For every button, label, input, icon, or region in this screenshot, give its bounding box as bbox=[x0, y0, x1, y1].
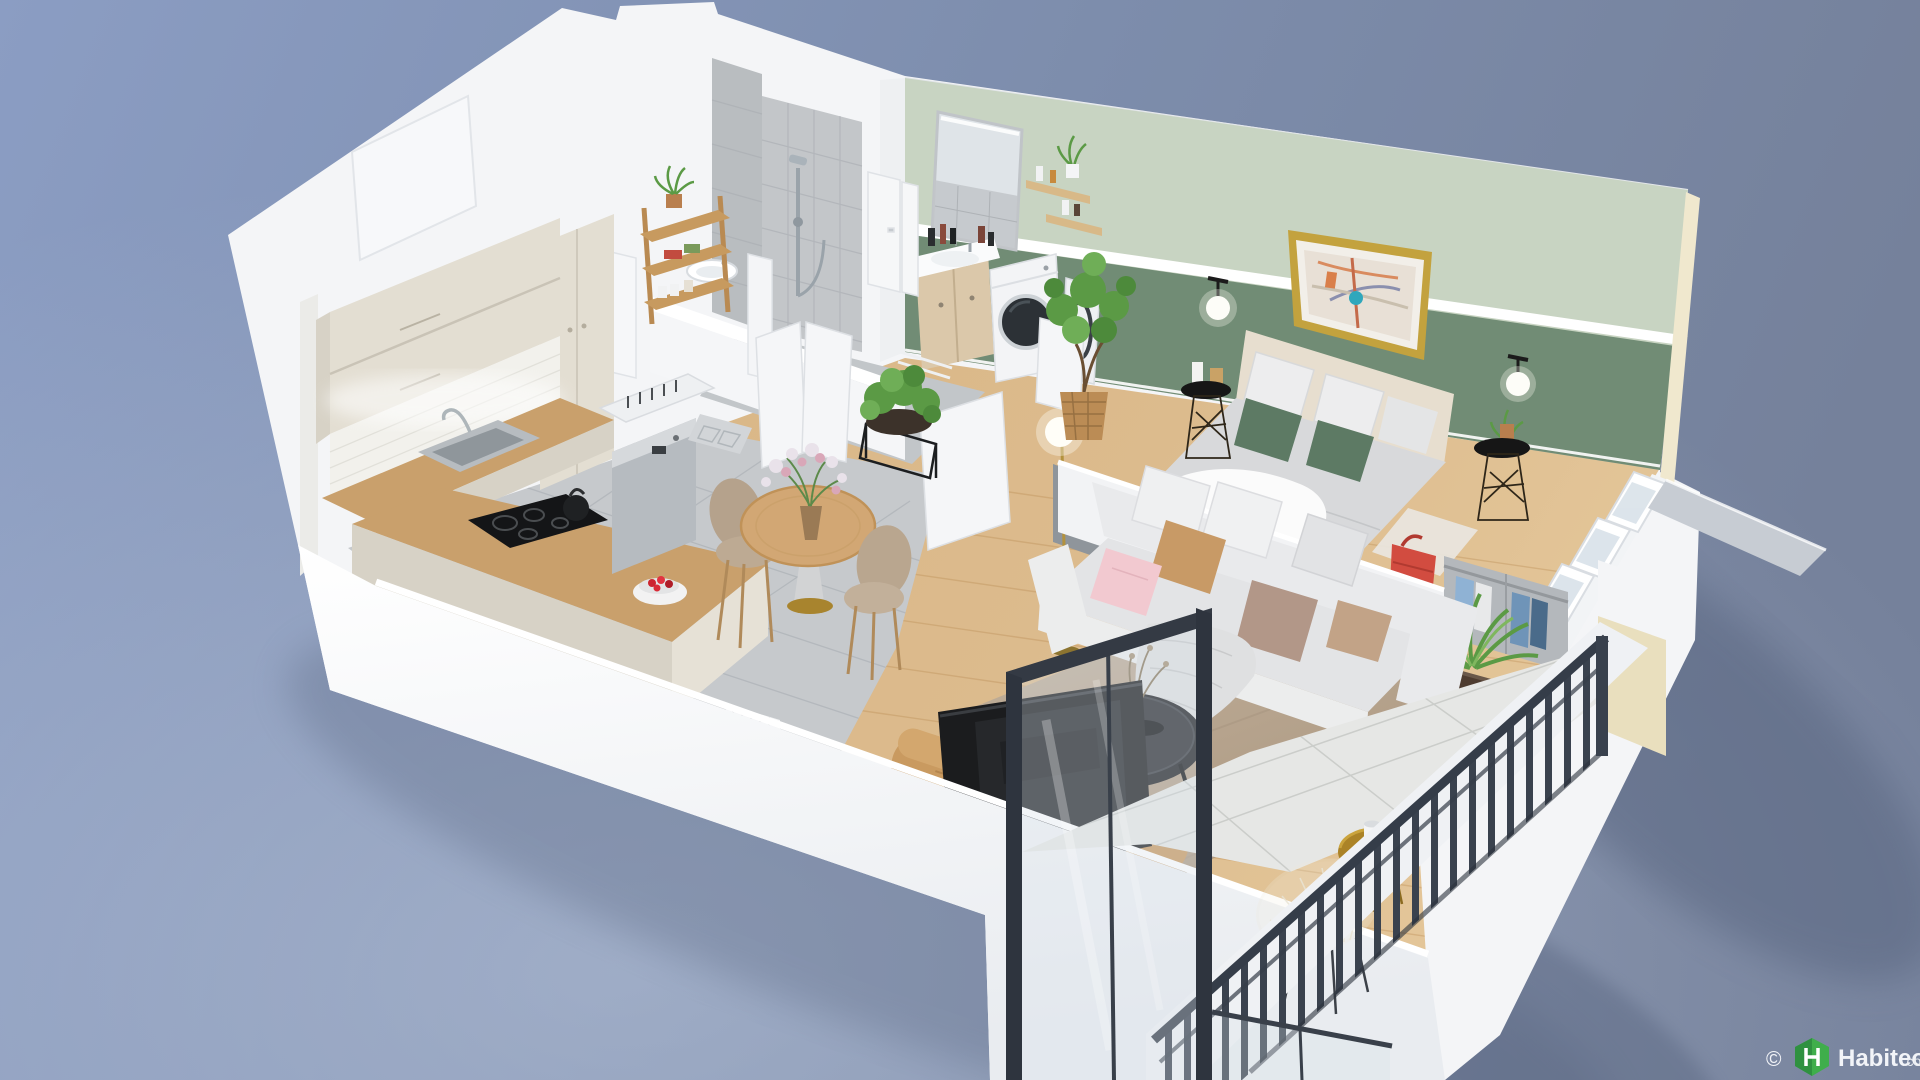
bathroom-door bbox=[611, 252, 636, 378]
bathroom-cupboard-doors bbox=[868, 172, 918, 296]
glass-door bbox=[1006, 608, 1212, 1080]
copyright-symbol: © bbox=[1766, 1048, 1782, 1071]
kettle-icon bbox=[563, 495, 589, 521]
floorplan-viewport: © Habiteo .com bbox=[0, 0, 1920, 1080]
brand-suffix: .com bbox=[1903, 1053, 1920, 1069]
left-wall-inner-face bbox=[300, 294, 318, 576]
floorplan-3d-canvas[interactable]: © Habiteo .com bbox=[0, 0, 1920, 1080]
